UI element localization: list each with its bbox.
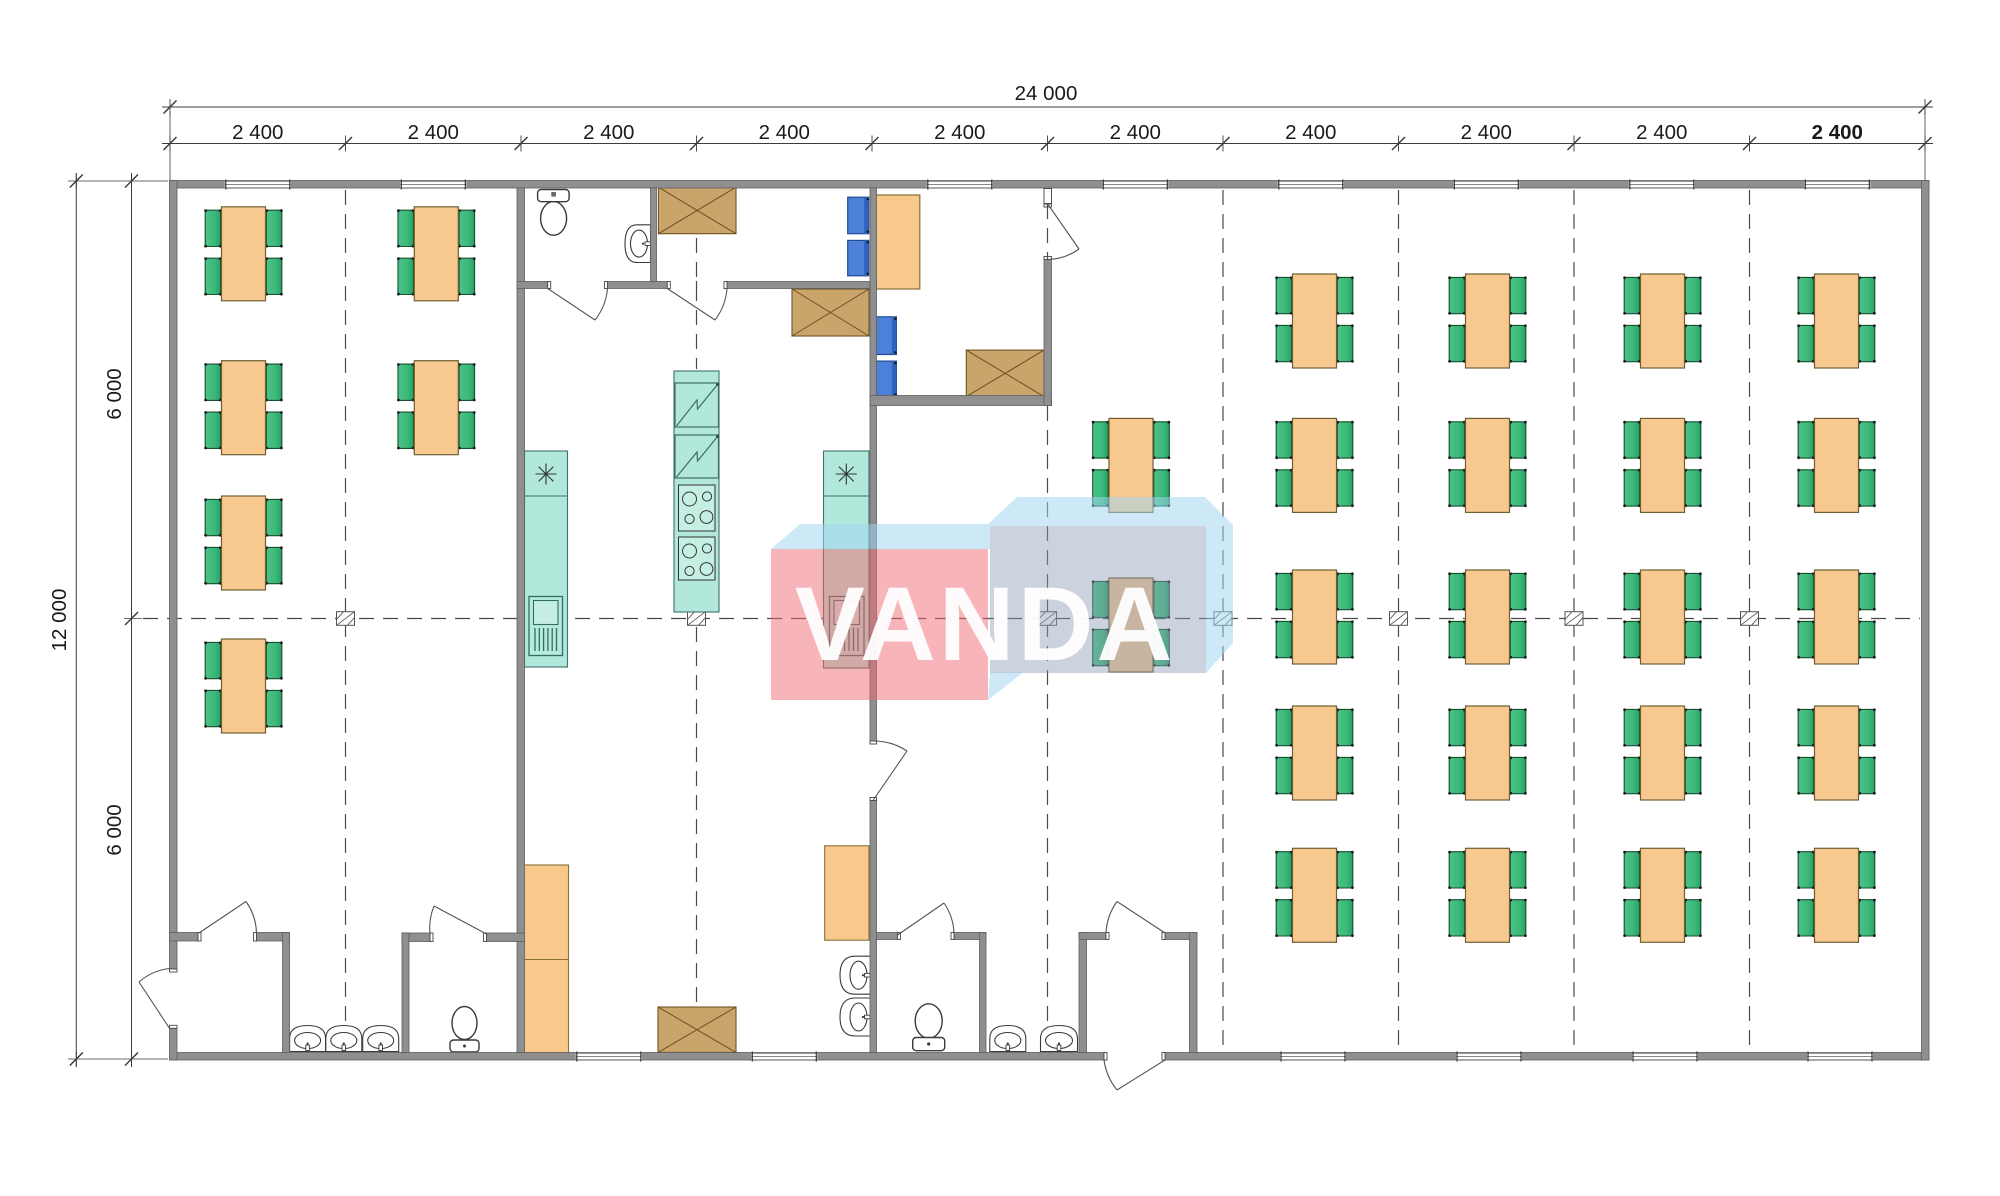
svg-text:2 400: 2 400 bbox=[1461, 121, 1512, 144]
svg-text:2 400: 2 400 bbox=[232, 121, 283, 144]
svg-text:2 400: 2 400 bbox=[1110, 121, 1161, 144]
svg-text:24 000: 24 000 bbox=[1015, 82, 1078, 105]
svg-text:2 400: 2 400 bbox=[1636, 121, 1687, 144]
svg-text:2 400: 2 400 bbox=[934, 121, 985, 144]
svg-text:6 000: 6 000 bbox=[103, 804, 126, 855]
svg-text:2 400: 2 400 bbox=[1285, 121, 1336, 144]
svg-text:12 000: 12 000 bbox=[48, 589, 71, 652]
svg-text:VANDA: VANDA bbox=[795, 566, 1176, 683]
svg-text:2 400: 2 400 bbox=[408, 121, 459, 144]
svg-text:2 400: 2 400 bbox=[583, 121, 634, 144]
svg-text:2 400: 2 400 bbox=[759, 121, 810, 144]
svg-text:2 400: 2 400 bbox=[1812, 121, 1863, 144]
svg-text:6 000: 6 000 bbox=[103, 368, 126, 419]
